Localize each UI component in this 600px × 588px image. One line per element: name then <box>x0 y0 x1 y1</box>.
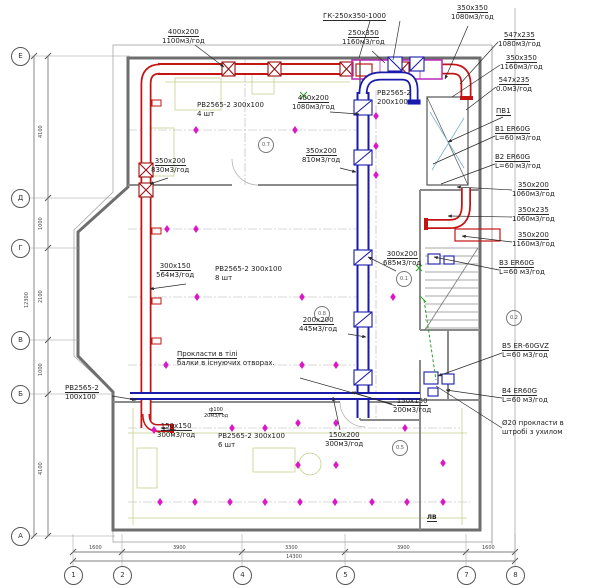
callout-duct-size: 150x150300м3/год <box>157 422 195 439</box>
door-arcs <box>232 159 365 427</box>
callout-duct-size: 547x2351080м3/год <box>498 31 541 48</box>
callout-duct-size: 200x200445м3/год <box>299 316 337 333</box>
callout-fan-b3: B3 ER60GL=60 м3/год <box>499 259 545 276</box>
exhaust-grille-icon <box>354 100 372 115</box>
callout-duct-size: 350x2001060м3/год <box>512 181 555 198</box>
dim-text: 1000 <box>38 363 44 376</box>
dim-total-text: 14300 <box>286 554 302 560</box>
dim-text: 1600 <box>89 545 102 551</box>
stair-label: ЛВ <box>427 514 437 523</box>
dim-text: 3900 <box>173 545 186 551</box>
grid-bubble-row-a: А <box>11 527 30 546</box>
ahu-pv1-unit <box>427 97 468 185</box>
room-tag: 0.5 <box>392 440 408 456</box>
exhaust-grille-icon <box>354 370 372 385</box>
callout-duct-size: 350x3501080м3/год <box>451 4 494 21</box>
callout-duct-size: 300x150564м3/год <box>156 262 194 279</box>
grid-bubble-col-4: 4 <box>233 566 252 585</box>
room-tag: 0.2 <box>506 310 522 326</box>
callout-fan-b4: B4 ER60GL=60 м3/год <box>502 387 548 404</box>
exhaust-grille-icon <box>354 312 372 327</box>
note-grille-count: РВ2565-2 300x1004 шт <box>197 101 264 118</box>
dim-text: 3300 <box>285 545 298 551</box>
note-pipe: Ø20 прокласти вштробі з ухилом <box>502 419 564 436</box>
callout-fan-b1: B1 ER60GL=60 м3/год <box>495 125 541 142</box>
callout-duct-size: 350x2001160м3/год <box>512 231 555 248</box>
room-tag: 0.1 <box>396 271 412 287</box>
callout-pipe-size: ф10020м3/год <box>204 407 228 419</box>
room-tag: 0.7 <box>258 137 274 153</box>
grid-bubble-col-5: 5 <box>336 566 355 585</box>
callout-duct-size: 250x3501160м3/год <box>342 29 385 46</box>
dim-text: 1600 <box>482 545 495 551</box>
callout-duct-size: 150x150200м3/год <box>393 397 431 414</box>
grid-bubble-col-8: 8 <box>506 566 525 585</box>
note-grille-type: РВ2565-2100x100 <box>65 384 99 401</box>
grid-bubble-row-d: Д <box>11 189 30 208</box>
grid-bubble-row-v: В <box>11 331 30 350</box>
grid-bubble-col-1: 1 <box>64 566 83 585</box>
note-grille-count: РВ2565-2 300x1008 шт <box>215 265 282 282</box>
callout-duct-size: 350x3501160м3/год <box>500 54 543 71</box>
note-beam-openings: Прокласти в тілібалки в існуючих отворах… <box>177 350 275 367</box>
callout-duct-size: 547x2350.0м3/год <box>496 76 532 93</box>
callout-duct-size: 300x200685м3/год <box>383 250 421 267</box>
dim-text: 3900 <box>397 545 410 551</box>
callout-duct-size: 400x2001100м3/год <box>162 28 205 45</box>
callout-duct-size: 350x2351060м3/год <box>512 206 555 223</box>
grid-bubble-row-g: Г <box>11 239 30 258</box>
grid-bubble-row-b: Б <box>11 385 30 404</box>
note-grille-count: РВ2565-2 300x1006 шт <box>218 432 285 449</box>
room-finish-lines <box>128 74 467 525</box>
grid-bubble-row-e: Е <box>11 47 30 66</box>
callout-duct-size: 350x200810м3/год <box>302 147 340 164</box>
dim-total-text: 12300 <box>24 292 30 308</box>
outer-boundary <box>74 8 515 562</box>
callout-duct-size: 150x200300м3/год <box>325 431 363 448</box>
callout-duct-size: 400x2001080м3/год <box>292 94 335 111</box>
callout-fan-b2: B2 ER60GL=60 м3/год <box>495 153 541 170</box>
exhaust-grille-icon <box>354 150 372 165</box>
callout-ahu: ПВ1 <box>496 107 511 116</box>
dim-text: 2100 <box>38 290 44 303</box>
grid-bubble-col-7: 7 <box>457 566 476 585</box>
callout-fan-b5: B5 ER-60GVZL=60 м3/год <box>502 342 549 359</box>
damper-icon <box>268 62 281 76</box>
damper-icon <box>340 62 353 76</box>
damper-icon <box>139 183 153 197</box>
dim-text: 4100 <box>38 462 44 475</box>
dim-text: 1000 <box>38 217 44 230</box>
note-grille-type: РВ2565-2200x100 <box>377 89 411 106</box>
grid-bubble-col-2: 2 <box>113 566 132 585</box>
dim-text: 4100 <box>38 125 44 138</box>
ventilation-plan-drawing: 400x2001100м3/год ГК-250x350-1000 250x35… <box>0 0 600 588</box>
callout-duct-size: 350x200830м3/год <box>151 157 189 174</box>
damper-icon <box>222 62 235 76</box>
callout-duct-heater: ГК-250x350-1000 <box>323 12 386 21</box>
